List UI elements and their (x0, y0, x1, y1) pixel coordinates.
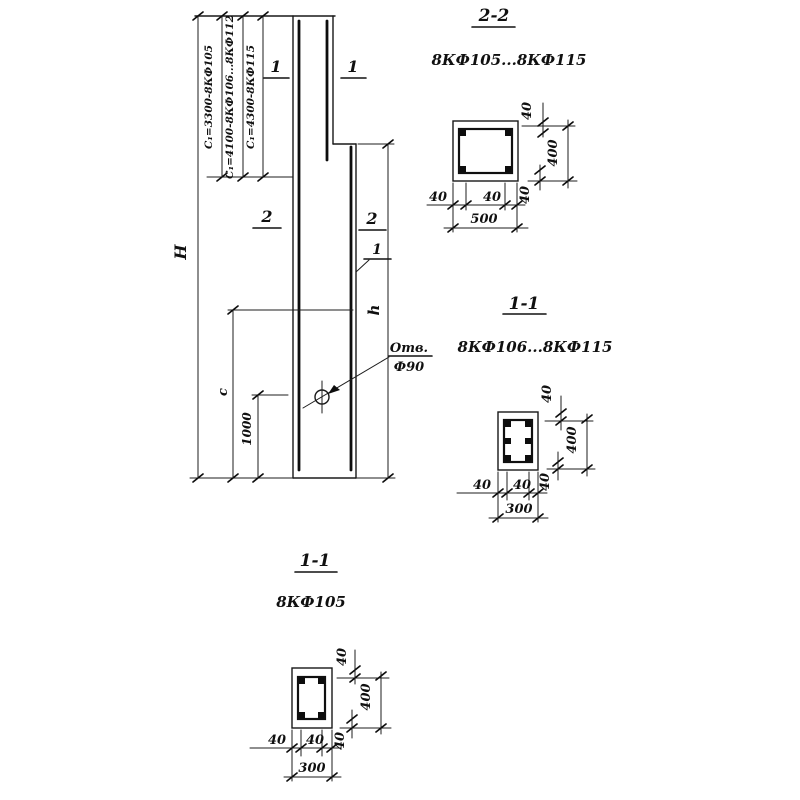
hole-note-line1: Отв. (390, 341, 428, 356)
section-2-2-stirrup (459, 129, 512, 173)
section-2-2-cover-top: 40 (520, 102, 535, 120)
section-2-2-products: 8КФ105...8КФ115 (432, 51, 587, 69)
hole-leader-line (303, 357, 389, 408)
rebar-note-1: С₁=3300-8КФ105 (203, 45, 215, 149)
section-1-1-bottom-width: 300 (298, 761, 325, 776)
dim-1000-label: 1000 (240, 412, 254, 446)
section-1-1-bottom-cover-left: 40 (268, 733, 286, 748)
rebar-note-2: С₁=4100-8КФ106...8КФ112 (224, 15, 236, 179)
column-outline (195, 16, 356, 478)
rebar-item-mark: 1 (372, 242, 382, 258)
section-1-1-bottom: 1-1 8КФ105 40 400 (250, 551, 391, 781)
hole-leader-arrow (328, 385, 340, 394)
section-2-2-cover-right: 40 (483, 190, 501, 205)
section-2-2-cover-bottom: 40 (518, 186, 533, 204)
rebar-item-leader (356, 260, 369, 272)
dim-shaft-height-label: h (365, 305, 383, 316)
section-1-1-mid-cover-left: 40 (473, 478, 491, 493)
section-1-1-bottom-depth: 400 (359, 683, 374, 710)
dim-c-label: с (216, 388, 231, 396)
section-1-1-bottom-cover-right: 40 (306, 733, 324, 748)
section-2-2-bars (460, 130, 511, 172)
blueprint-canvas: Н С₁=3300-8КФ105 С₁=4100-8КФ106...8КФ112… (0, 0, 800, 800)
dim-overall-height-label: Н (171, 244, 190, 261)
hole-note-line2: Ф90 (394, 360, 424, 375)
section-1-1-mid-cover-bottom: 40 (538, 473, 553, 491)
cut-mark-2-left: 2 (260, 207, 272, 226)
section-1-1-mid-title: 1-1 (509, 294, 540, 314)
cut-mark-1-right: 1 (347, 57, 358, 76)
section-1-1-mid-cover-top: 40 (540, 385, 555, 403)
section-1-1-mid: 1-1 8КФ106...8КФ115 (457, 294, 612, 522)
section-1-1-bottom-products: 8КФ105 (276, 593, 346, 611)
cut-mark-2-right: 2 (365, 209, 377, 228)
section-2-2-width: 500 (470, 212, 497, 227)
section-1-1-mid-width: 300 (505, 502, 532, 517)
rebar-note-3: С₁=4300-8КФ115 (245, 45, 257, 149)
section-1-1-mid-cover-right: 40 (513, 478, 531, 493)
cut-mark-1-left: 1 (270, 57, 281, 76)
section-1-1-bottom-cover-bottom: 40 (333, 732, 348, 750)
column-elevation: Н С₁=3300-8КФ105 С₁=4100-8КФ106...8КФ112… (171, 12, 432, 482)
section-2-2-cover-left: 40 (429, 190, 447, 205)
section-1-1-bottom-cover-top: 40 (335, 648, 350, 666)
section-1-1-bottom-title: 1-1 (300, 551, 331, 571)
section-2-2-depth: 400 (546, 139, 561, 166)
section-2-2-title: 2-2 (478, 6, 510, 26)
section-1-1-mid-bars (505, 421, 531, 461)
section-1-1-mid-depth: 400 (565, 426, 580, 453)
section-1-1-bottom-bars (299, 678, 324, 718)
section-1-1-mid-products: 8КФ106...8КФ115 (458, 338, 613, 356)
section-2-2: 2-2 8КФ105...8КФ115 40 (427, 6, 586, 232)
